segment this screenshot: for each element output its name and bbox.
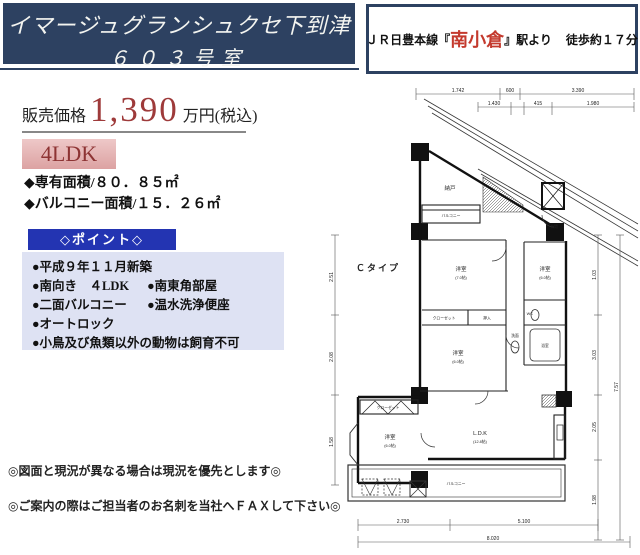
elevator-box xyxy=(542,183,564,209)
outer-walls xyxy=(358,151,566,483)
dim-label: 1.430 xyxy=(488,101,501,107)
point-item: ●平成９年１１月新築 xyxy=(32,260,152,274)
room-number: ６０３号室 xyxy=(3,42,355,71)
label-ldk: L.D.K xyxy=(473,431,487,437)
room-size-bedroom-east: (6.0帖) xyxy=(539,275,551,280)
dim-label: 1.98 xyxy=(592,495,598,505)
dim-label: 1.742 xyxy=(452,88,465,94)
room-label-bedroom3: 洋室 xyxy=(384,433,396,441)
exclusive-area: ◆専有面積/８０．８５㎡ xyxy=(24,173,220,194)
room-label-bedroom-east: 洋室 xyxy=(539,265,551,273)
walk-time: 徒歩約１７分 xyxy=(566,31,638,48)
point-row: ●オートロック xyxy=(32,315,284,334)
balcony-area: ◆バルコニー面積/１５．２６㎡ xyxy=(24,194,220,215)
label-genkan: 玄関 xyxy=(550,224,558,229)
dim-label: 2.51 xyxy=(329,272,335,282)
floorplan-drawing: 1.742 600 3.390 1.430 415 1.980 xyxy=(328,85,640,555)
dim-label: 8.020 xyxy=(487,536,500,542)
dim-label: 2.05 xyxy=(592,422,598,432)
label-closet2: クローゼット xyxy=(377,405,400,410)
dim-label: 415 xyxy=(534,101,543,107)
room-label-bedroom1: 洋室 xyxy=(455,265,467,273)
dim-label: 600 xyxy=(506,88,515,94)
title-banner: イマージュグランシュクセ下到津 ６０３号室 xyxy=(3,3,355,64)
dim-label: 2.730 xyxy=(397,519,410,525)
dim-label: 3.03 xyxy=(592,350,598,360)
building-name: イマージュグランシュクセ下到津 xyxy=(3,8,355,40)
price-label: 販売価格 xyxy=(22,108,86,125)
room-size-bedroom3: (6.0帖) xyxy=(384,443,396,448)
label-wc: WC xyxy=(527,312,534,316)
flyer-page: イマージュグランシュクセ下到津 ６０３号室 ＪＲ日豊本線『南小倉』駅より徒歩約１… xyxy=(0,0,640,555)
point-item: ●小鳥及び魚類以外の動物は飼育不可 xyxy=(32,336,240,350)
dimension-top xyxy=(416,88,634,115)
dim-label: 2.08 xyxy=(329,352,335,362)
point-item: ●二面バルコニー xyxy=(32,296,144,315)
point-item: ●南向き ４LDK xyxy=(32,277,144,296)
point-item: ●オートロック xyxy=(32,317,115,331)
interior-walls xyxy=(360,205,566,459)
point-row: ●平成９年１１月新築 xyxy=(32,258,284,277)
note-fax-request: ◎ご案内の際はご担当者のお名刺を当社へＦＡＸして下さい◎ xyxy=(8,497,341,514)
price-amount: 1,390 xyxy=(90,90,179,129)
label-senmen: 洗面 xyxy=(511,333,519,338)
label-closet1: クローゼット xyxy=(433,316,456,321)
room-size-bedroom2: (6.0帖) xyxy=(452,359,464,364)
bay-window xyxy=(350,423,358,465)
point-item: ●温水洗浄便座 xyxy=(147,298,230,312)
layout-badge: 4LDK xyxy=(22,139,116,169)
dim-label: 1.980 xyxy=(587,101,600,107)
label-oshiire: 押入 xyxy=(483,316,491,321)
price-unit: 万円(税込) xyxy=(183,108,258,125)
bath-fixtures xyxy=(511,310,560,408)
point-row: ●二面バルコニー ●温水洗浄便座 xyxy=(32,296,284,315)
room-label-nando: 納戸 xyxy=(444,184,456,192)
points-title: ◇ポイント◇ xyxy=(28,229,176,250)
label-bath: 浴室 xyxy=(541,343,549,348)
size-ldk: (12.8帖) xyxy=(473,439,487,444)
area-info: ◆専有面積/８０．８５㎡ ◆バルコニー面積/１５．２６㎡ xyxy=(24,173,220,215)
dim-label: 1.03 xyxy=(592,270,598,280)
road-lines xyxy=(424,99,638,266)
dim-label: 5.100 xyxy=(518,519,531,525)
price-row: 販売価格 1,390 万円(税込) xyxy=(22,92,246,133)
room-label-balcony-top: バルコニー xyxy=(442,213,461,218)
dim-label: 1.58 xyxy=(329,437,335,447)
label-balcony-bottom: バルコニー xyxy=(447,481,466,486)
door-arcs xyxy=(421,215,554,447)
note-plan-priority: ◎図面と現況が異なる場合は現況を優先とします◎ xyxy=(8,462,341,479)
type-label: Ｃタイプ xyxy=(356,262,400,273)
station-name: 南小倉 xyxy=(450,26,504,52)
disclaimer-notes: ◎図面と現況が異なる場合は現況を優先とします◎ ◎ご案内の際はご担当者のお名刺を… xyxy=(8,462,341,514)
point-item: ●南東角部屋 xyxy=(147,279,217,293)
dim-label: 3.390 xyxy=(572,88,585,94)
station-line-suffix: 』駅より xyxy=(504,31,552,48)
dim-label: 7.57 xyxy=(614,382,620,392)
room-size-bedroom1: (7.0帖) xyxy=(455,275,467,280)
station-line-prefix: ＪＲ日豊本線『 xyxy=(366,31,450,48)
points-box: ●平成９年１１月新築 ●南向き ４LDK ●南東角部屋 ●二面バルコニー ●温水… xyxy=(22,252,284,350)
room-label-bedroom2: 洋室 xyxy=(452,349,464,357)
banner-underline xyxy=(0,68,359,70)
station-access-box: ＪＲ日豊本線『南小倉』駅より徒歩約１７分 xyxy=(366,4,638,74)
point-row: ●南向き ４LDK ●南東角部屋 xyxy=(32,277,284,296)
point-row: ●小鳥及び魚類以外の動物は飼育不可 xyxy=(32,334,284,353)
